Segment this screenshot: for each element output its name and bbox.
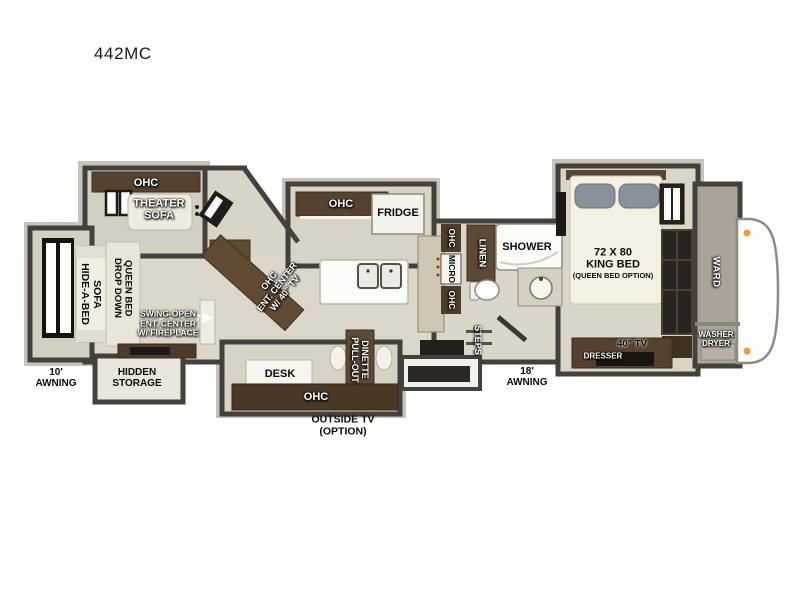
label-bottom-ohc: OHC <box>304 391 328 403</box>
range-dot-2 <box>437 266 440 269</box>
bedroom-window-pane2 <box>673 188 680 220</box>
floorplan-title: 442MC <box>94 44 152 64</box>
cap-marker-light-bottom <box>744 348 751 355</box>
label-ward: WARD <box>710 256 721 287</box>
label-theater-ohc: OHC <box>134 177 158 189</box>
theater-window-1 <box>106 191 117 215</box>
vanity-faucet <box>539 277 543 281</box>
label-hide-a-bed-sofa: HIDE-A-BED SOFA <box>78 263 102 325</box>
kitchen-right-counter <box>418 236 444 332</box>
cap-marker-light-top <box>744 230 751 237</box>
front-cap <box>737 219 778 363</box>
faucet-dot-1 <box>366 269 369 272</box>
label-desk: DESK <box>265 368 296 380</box>
dinette-seat-right <box>376 346 392 370</box>
label-awning-18ft: 18' AWNING <box>506 366 547 388</box>
entry-steps-outside <box>408 366 470 382</box>
label-awning-10ft: 10' AWNING <box>35 367 76 389</box>
dinette-seat-left <box>330 346 346 370</box>
label-pull-out-dinette: PULL-OUT DINETTE <box>350 337 370 383</box>
label-queen-bed-option: (QUEEN BED OPTION) <box>573 272 653 280</box>
label-drop-down-bed: DROP DOWN QUEEN BED <box>111 258 132 318</box>
toilet <box>475 280 499 300</box>
label-linen: LINEN <box>476 239 487 268</box>
bedroom-window-pane1 <box>664 188 671 220</box>
pillow-left <box>575 184 615 208</box>
label-swing-open-ent-center: SWING-OPEN ENT. CENTER W/ FIREPLACE <box>138 310 199 339</box>
entry-step-well <box>420 340 464 355</box>
label-theater-sofa: THEATER SOFA <box>133 198 184 223</box>
sofa-armrest-top <box>76 246 106 258</box>
label-shower: SHOWER <box>502 241 552 253</box>
label-bath-ohc-upper: OHC <box>446 229 456 248</box>
label-fridge: FRIDGE <box>377 207 419 219</box>
label-40in-tv: 40" TV <box>617 340 647 351</box>
cupholder-dot-1 <box>195 205 199 209</box>
label-hidden-storage: HIDDEN STORAGE <box>112 367 161 389</box>
label-outside-tv: OUTSIDE TV (OPTION) <box>311 414 374 438</box>
bedroom-left-window <box>556 192 566 236</box>
fireplace-insert <box>130 347 170 355</box>
closet-line-2 <box>662 289 692 291</box>
range-dot-1 <box>437 258 440 261</box>
label-washer-dryer: WASHER DRYER <box>698 331 733 349</box>
left-slide-window-pane2 <box>60 243 71 333</box>
label-steps: STEPS <box>473 325 483 355</box>
left-slide-window-pane1 <box>46 243 56 333</box>
pillow-right <box>619 184 659 208</box>
label-micro: MICRO <box>446 255 456 283</box>
label-king-bed: 72 X 80 KING BED <box>586 247 640 272</box>
closet-divider <box>676 230 678 334</box>
label-bath-ohc-lower: OHC <box>446 291 456 310</box>
range-dot-3 <box>437 274 440 277</box>
sofa-armrest-bottom <box>76 330 106 342</box>
kitchen-counter-edge <box>300 216 380 219</box>
bedroom-right-window-frame <box>660 184 684 224</box>
sink-bowl-2 <box>381 264 401 288</box>
label-dresser: DRESSER <box>584 353 623 362</box>
sink-bowl-1 <box>358 264 378 288</box>
faucet-dot-2 <box>389 269 392 272</box>
label-kitchen-ohc: OHC <box>329 198 353 210</box>
cupholder-dot-2 <box>195 212 199 216</box>
closet-line-1 <box>662 259 692 261</box>
ward-divider <box>695 322 740 326</box>
floorplan-page: 442MC OHC THEATER SOFA HIDE-A-BED SOFA D… <box>0 0 800 600</box>
